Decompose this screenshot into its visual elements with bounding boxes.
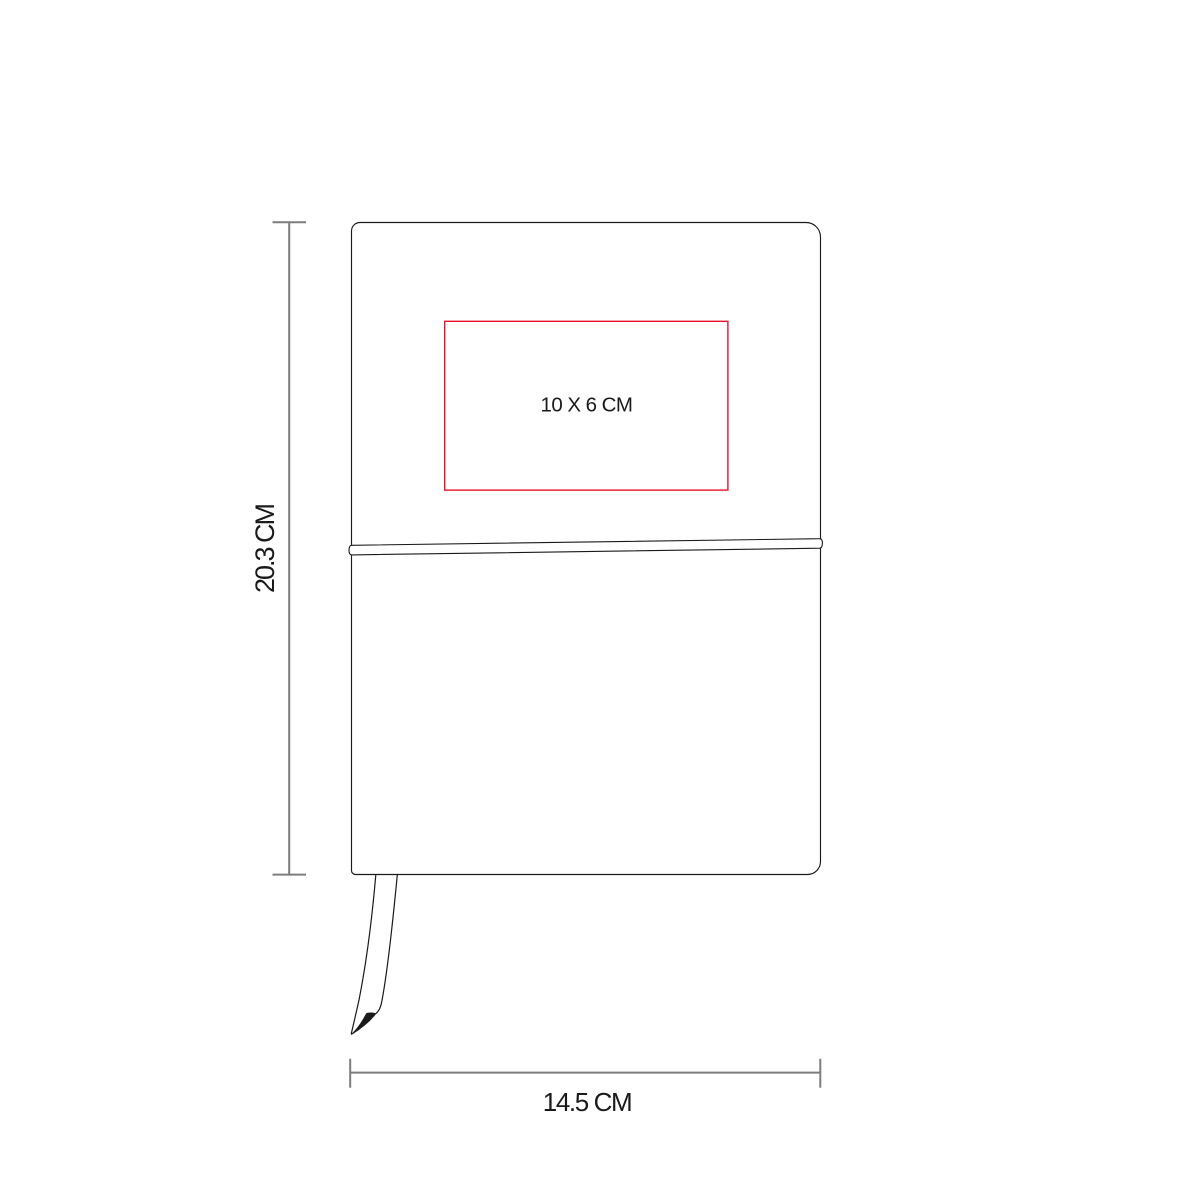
svg-text:10 X 6 CM: 10 X 6 CM <box>541 394 633 417</box>
svg-text:14.5 CM: 14.5 CM <box>543 1087 631 1117</box>
svg-text:20.3 CM: 20.3 CM <box>250 504 280 593</box>
